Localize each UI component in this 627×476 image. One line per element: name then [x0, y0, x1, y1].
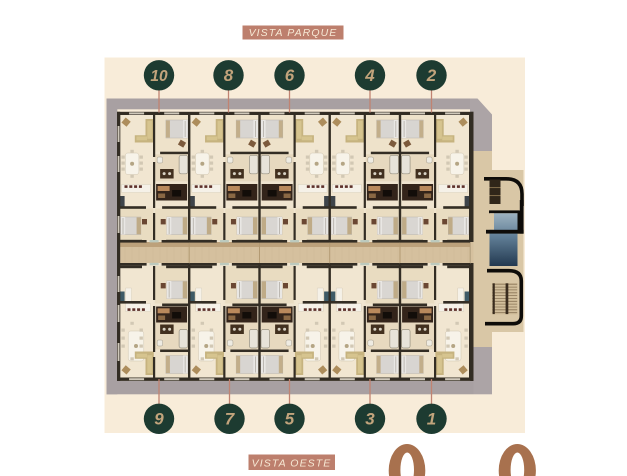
- svg-text:4: 4: [364, 66, 375, 85]
- svg-text:10: 10: [150, 68, 168, 85]
- svg-text:VISTA PARQUE: VISTA PARQUE: [249, 27, 338, 39]
- svg-text:1: 1: [427, 410, 436, 429]
- svg-text:2: 2: [426, 66, 437, 85]
- svg-text:VISTA OESTE: VISTA OESTE: [252, 458, 332, 470]
- svg-text:5: 5: [285, 410, 295, 429]
- svg-text:6: 6: [285, 66, 295, 85]
- svg-text:3: 3: [365, 410, 375, 429]
- svg-text:7: 7: [225, 410, 236, 429]
- svg-text:9: 9: [154, 410, 164, 429]
- svg-text:8: 8: [224, 66, 234, 85]
